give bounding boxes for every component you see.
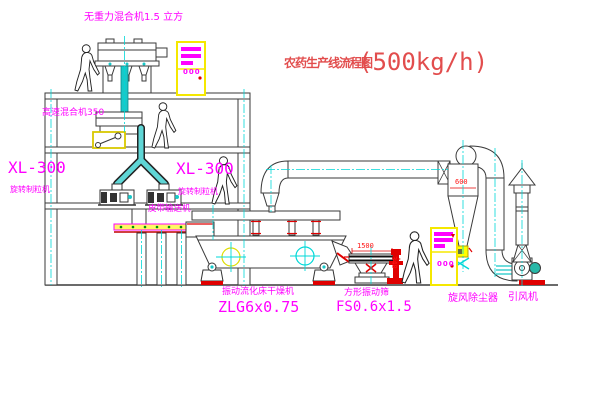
person-figure-roof — [75, 45, 99, 91]
cad-flow-diagram: 无重力混合机1.5 立方 高速混合机350 XL-300 旋转制粒机 XL-30… — [0, 0, 600, 403]
dimension-cyclone-width: 600 — [455, 179, 468, 186]
label-granulator-model-left: XL-300 — [8, 160, 66, 176]
control-cabinet-right — [431, 228, 457, 285]
label-gravity-mixer: 无重力混合机1.5 立方 — [84, 13, 183, 23]
label-cyclone: 旋风除尘器 — [448, 294, 498, 304]
granulator-left — [98, 184, 136, 205]
fluid-bed-dryer — [186, 211, 355, 285]
label-screen-model: FS0.6x1.5 — [336, 300, 412, 314]
belt-conveyor — [114, 224, 196, 232]
dimension-screen-height: 340 — [390, 256, 397, 269]
exhaust-duct — [261, 161, 450, 212]
label-dryer-model: ZLG6x0.75 — [218, 300, 299, 315]
label-dryer-name: 振动流化床干燥机 — [222, 288, 294, 297]
gravity-mixer — [95, 39, 167, 93]
cabinet-top-indicator: 000 — [183, 69, 201, 76]
label-granulator-name-left: 旋转制粒机 — [10, 186, 50, 194]
person-figure-floor2 — [152, 103, 176, 148]
discharge-duct — [132, 209, 146, 224]
cabinet-right-indicator: 000 — [437, 261, 455, 268]
label-high-speed-mixer: 高速混合机350 — [42, 109, 104, 118]
dimension-screen-length: 1500 — [357, 243, 374, 250]
label-granulator-name-right: 旋转制粒机 — [178, 188, 218, 196]
person-figure-ground — [402, 232, 429, 283]
label-granulator-model-right: XL-300 — [176, 161, 234, 177]
label-screen-name: 方形振动筛 — [344, 289, 389, 298]
label-belt-conveyor: 皮带输送机 — [148, 205, 191, 214]
label-fan: 引风机 — [508, 293, 538, 303]
diagram-title-capacity: (500kg/h) — [358, 50, 488, 74]
